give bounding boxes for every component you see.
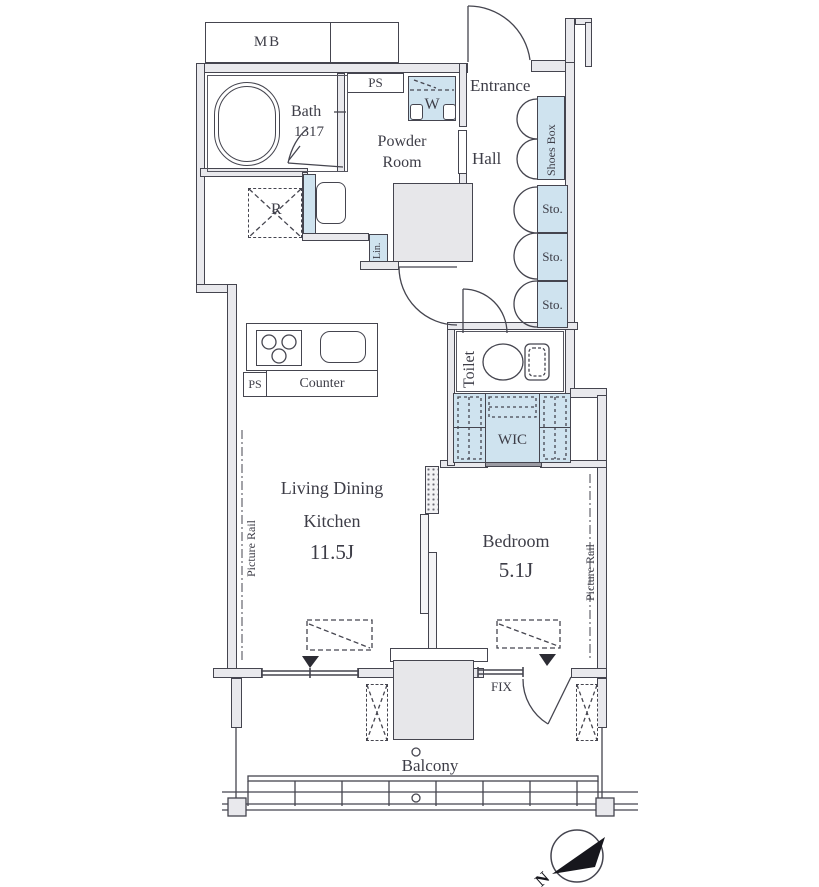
ldk-window-glazing xyxy=(262,668,358,678)
picture-rail-lines xyxy=(242,430,590,662)
shoes-box-door-arcs xyxy=(517,99,537,179)
north-label: N xyxy=(531,867,553,887)
fridge-cross xyxy=(249,189,301,237)
ldk-vent-triangle xyxy=(302,656,319,668)
bedroom-window-indicator xyxy=(497,620,560,648)
north-compass: N xyxy=(531,830,605,887)
floorplan-canvas: MB PS Bath 1317 Powder Room W Entrance H… xyxy=(0,0,819,887)
storage-door-arcs xyxy=(514,187,537,327)
ldk-door-swing xyxy=(399,267,457,325)
bath-door-swing xyxy=(288,112,346,167)
toilet-door-swing xyxy=(463,289,507,333)
washer-dashes xyxy=(410,80,454,90)
toilet-fixture xyxy=(483,344,549,380)
bedroom-balcony-door-swing xyxy=(523,677,571,724)
stove-burners xyxy=(262,335,296,363)
ldk-window-indicator xyxy=(307,620,372,650)
balcony-railing xyxy=(222,728,638,816)
entrance-door-swing xyxy=(468,6,530,62)
fix-window-glazing xyxy=(478,667,523,677)
wic-hanger-rods xyxy=(458,397,566,459)
bedroom-vent-triangle xyxy=(539,654,556,666)
floorplan-lines-layer: N xyxy=(0,0,819,887)
